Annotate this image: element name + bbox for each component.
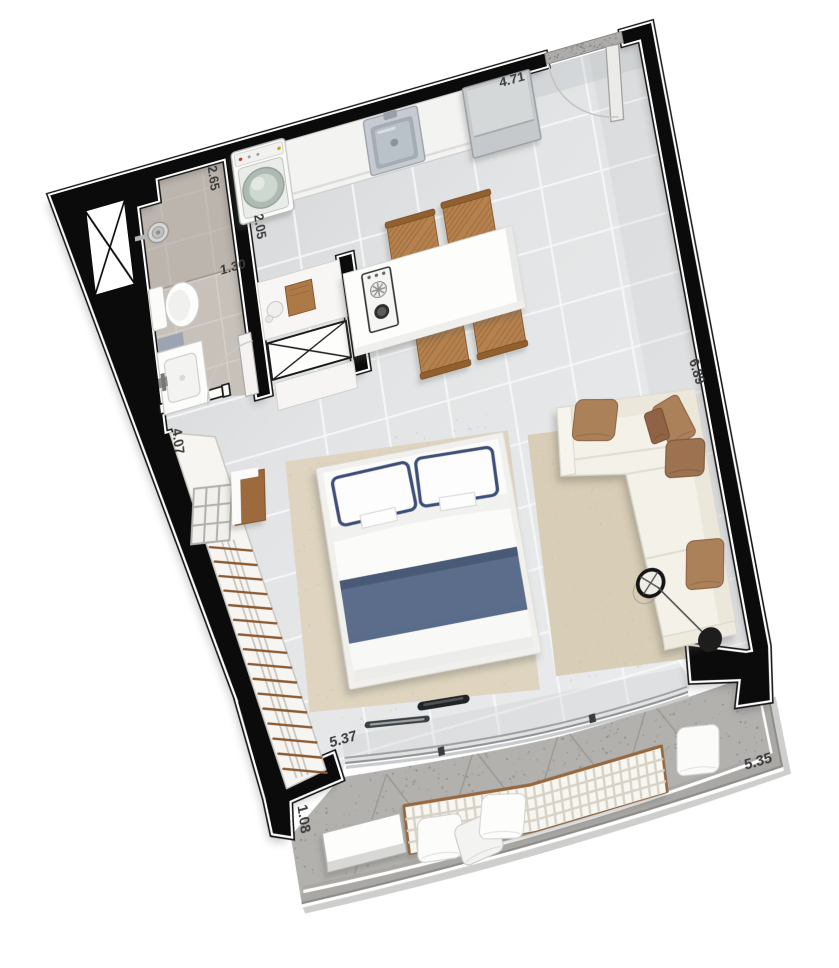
svg-text:2.05: 2.05 [251, 212, 270, 241]
svg-text:4.07: 4.07 [169, 426, 188, 456]
svg-text:2.65: 2.65 [205, 164, 223, 193]
